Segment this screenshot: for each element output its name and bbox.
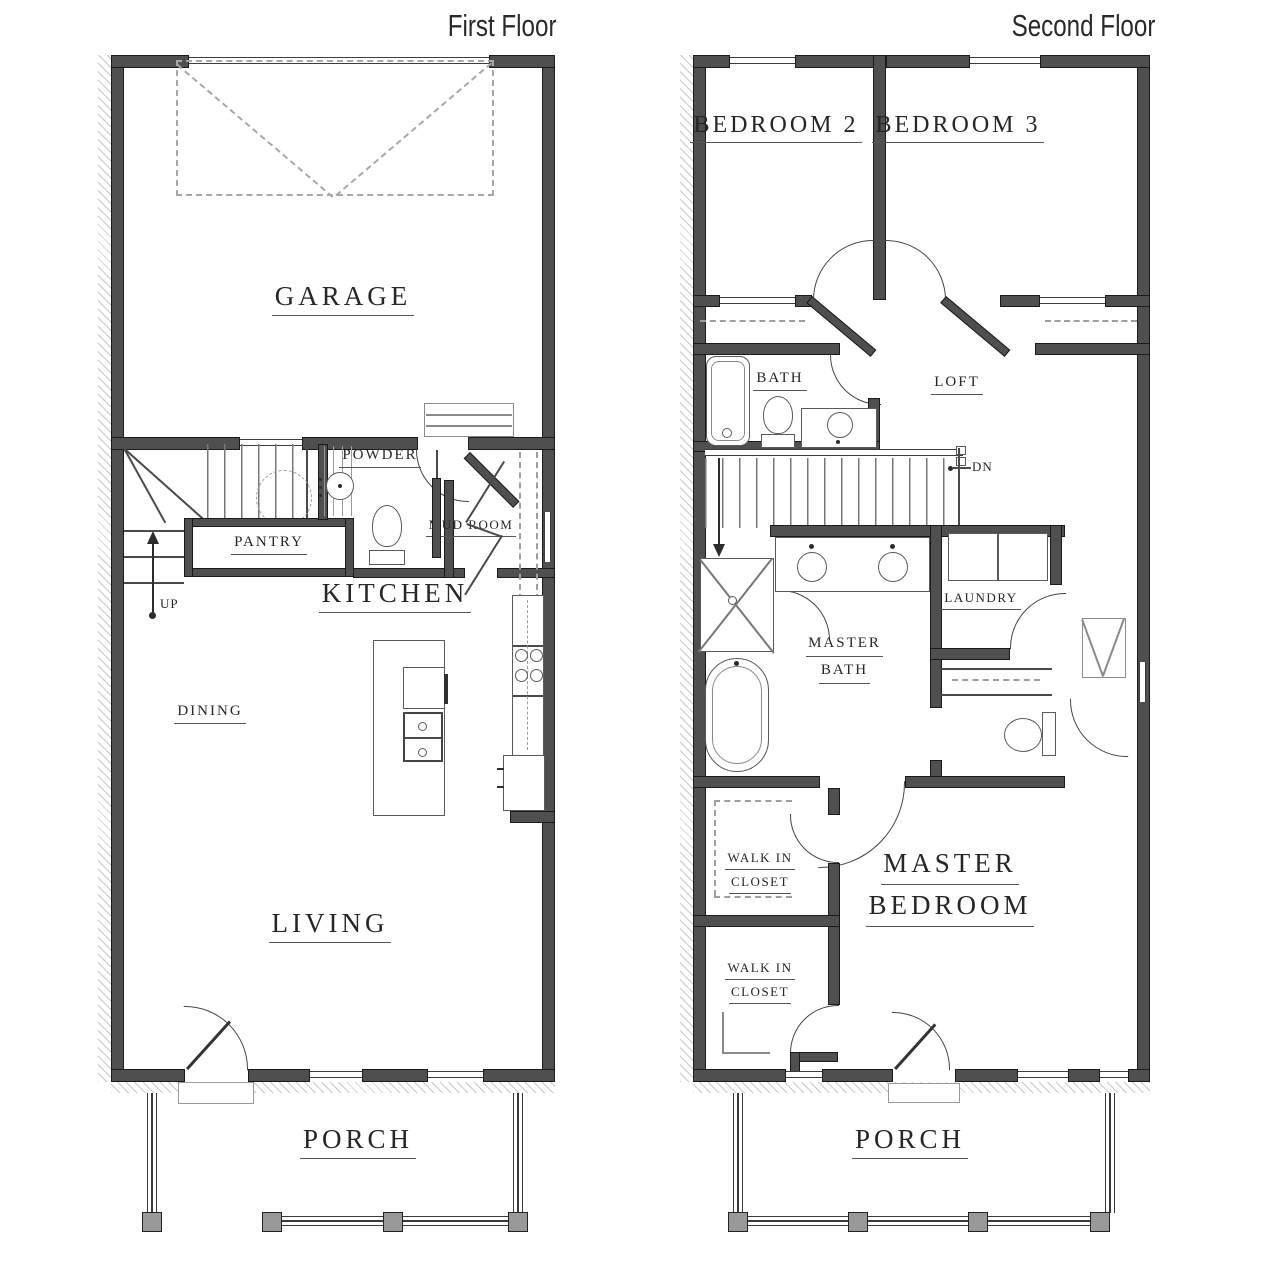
stair-winder-tread [124,582,184,584]
up-arrow-dot [149,612,156,619]
shelf-dashed [952,679,1040,681]
wall-segment [1035,343,1150,355]
fridge-handle [497,786,504,788]
refrigerator [503,755,545,811]
second-floor-title: Second Floor [950,8,1155,44]
first-floor-title: First Floor [356,8,556,44]
wall-segment [1000,295,1040,307]
wall-segment [1128,1069,1150,1082]
wall-segment [693,343,840,355]
sink-drain [338,484,342,488]
room-label-master-bath: MASTERBATH [792,632,897,686]
window [1139,662,1146,702]
stair-winder-line [124,448,208,523]
wall-segment [510,811,555,823]
door-arc-bath [830,305,930,405]
porch-railing [513,1093,523,1213]
porch-post [848,1212,868,1232]
bath-toilet-bowl [763,396,793,434]
wall-segment [497,568,555,578]
porch-railing [988,1216,1090,1226]
faucet-dot [319,494,322,497]
closet-front-line [1040,297,1105,304]
wall-segment [693,55,730,68]
window [1100,1071,1128,1078]
down-arrow-shaft [718,458,720,544]
tub-drain [722,428,732,438]
entry-stoop-2 [888,1083,960,1103]
room-label-garage: GARAGE [243,281,443,316]
porch-railing [868,1216,968,1226]
porch-post [262,1212,282,1232]
dishwasher [403,667,445,709]
stair-edge-line [958,448,960,528]
faucet-dot [319,478,322,481]
tub-faucet [734,661,739,666]
window [428,1071,483,1078]
wall-segment [886,55,970,68]
wall-segment [1137,55,1150,1082]
dishwasher-handle [444,674,448,704]
faucet-dot [319,486,322,489]
stove-burner [515,649,528,662]
wall-segment [432,478,441,558]
wall-segment [468,437,555,450]
room-label-bedroom2: BEDROOM 2 [686,112,866,143]
wall-segment [693,915,840,927]
entry-stoop [178,1082,254,1104]
room-label-kitchen: KITCHEN [295,578,495,613]
stair-winder-line [124,448,167,523]
porch-railing [748,1216,848,1226]
porch-post [383,1212,403,1232]
wall-segment [184,568,354,577]
sink-divider [405,737,441,739]
wall-segment [930,525,942,708]
garage-step-line [426,425,512,427]
wall-segment [248,1069,310,1082]
wall-line [436,450,438,478]
window [730,57,795,64]
wall-segment [828,788,840,815]
room-label-pantry: PANTRY [196,534,342,555]
dryer [998,533,1048,581]
stair-label-up: UP [160,596,200,612]
toilet-bowl [1004,718,1042,752]
wall-segment [955,1069,1018,1082]
wall-segment [693,1069,786,1082]
porch-railing [1105,1093,1115,1213]
room-label-walk-in-closet-2: WALK INCLOSET [705,958,815,1006]
garage-door-dashed-outline [176,60,494,196]
toilet-tank [1042,712,1056,756]
stove-burner [515,669,528,682]
closet-shelf-line [722,1052,770,1054]
wall-segment [184,518,193,577]
window [1018,1071,1068,1078]
wall-segment [828,863,840,1005]
wall-segment [822,1069,893,1082]
window [786,1071,822,1078]
exterior-hatch-left-2 [680,55,693,1082]
shower-drain [728,596,737,605]
wall-segment [873,55,886,300]
freestanding-tub-inner [712,666,762,764]
shelf-line [940,668,1052,670]
wall-segment [693,776,820,788]
wall-segment [1105,295,1150,307]
vanity-sink [797,552,827,582]
garage-step [424,403,514,437]
powder-toilet-bowl [372,505,402,547]
sink-drain [418,722,427,731]
porch-railing [403,1216,508,1226]
faucet-dot [836,440,840,444]
room-label-walk-in-closet-1: WALK INCLOSET [705,848,815,896]
room-label-porch-2: PORCH [810,1124,1010,1159]
wall-segment [905,776,1065,788]
stairs-down-treads [705,458,960,528]
wall-segment [184,518,354,527]
tile-line [324,446,325,516]
closet-rod-dashed [1045,320,1137,322]
floor-plan-canvas: First Floor Second Floor GARAGE UP PANTR… [0,0,1270,1270]
room-label-loft: LOFT [921,374,993,395]
closet-front-line [720,297,795,304]
wall-segment [693,295,720,307]
closet-rod-dashed [700,320,805,322]
room-label-laundry: LAUNDRY [930,590,1032,610]
up-arrow-shaft [152,540,154,616]
room-label-master-bedroom: MASTERBEDROOM [850,845,1050,929]
closet-rod-dashed [536,452,538,600]
room-label-living: LIVING [230,908,430,943]
garage-step-line [426,414,512,416]
porch-railing [282,1216,383,1226]
up-arrow-head [147,531,159,544]
stove-burner [530,669,543,682]
porch-railing [733,1093,743,1213]
faucet-dot [890,544,895,549]
stair-rail-line [705,449,963,456]
dn-leader-line [953,467,971,469]
shelf-line [940,694,1052,696]
wall-segment [1040,55,1150,68]
exterior-hatch-left-1 [98,55,111,1082]
room-label-bath: BATH [745,370,815,391]
washer [948,533,998,581]
closet-rod-dashed [519,452,521,600]
room-label-powder: POWDER [330,447,430,468]
faucet-dot [809,544,814,549]
closet-shelf-dashed [714,896,792,898]
room-label-bedroom3: BEDROOM 3 [868,112,1048,143]
porch-post [1090,1212,1110,1232]
porch-post [728,1212,748,1232]
sink-drain [418,748,427,757]
stove-burner [530,649,543,662]
counter-divider [513,645,543,647]
stair-winder-tread [124,556,184,558]
wall-segment [489,55,555,68]
vanity-sink [878,552,908,582]
porch-post [508,1212,528,1232]
closet-shelf-line [722,1012,724,1054]
wall-segment [111,1069,185,1082]
room-label-porch-1: PORCH [258,1124,458,1159]
wall-segment [362,1069,428,1082]
window [310,1071,362,1078]
porch-post [968,1212,988,1232]
room-label-dining: DINING [150,703,270,724]
wall-segment [790,1052,800,1072]
fridge-handle [497,768,504,770]
window [544,512,551,562]
closet-shelf-dashed [714,800,792,802]
bath-sink [827,412,853,438]
bath-toilet-tank [761,434,795,448]
wall-segment [483,1069,555,1082]
wall-segment [111,55,124,1082]
counter-divider [513,695,543,697]
stair-label-dn: DN [972,459,1012,475]
porch-railing [147,1093,157,1213]
wall-segment [1068,1069,1100,1082]
powder-toilet-tank [369,550,405,565]
window [970,57,1040,64]
porch-post [142,1212,162,1232]
wall-segment [930,648,1010,660]
down-arrow-head [713,544,725,557]
wall-segment [1050,525,1062,585]
